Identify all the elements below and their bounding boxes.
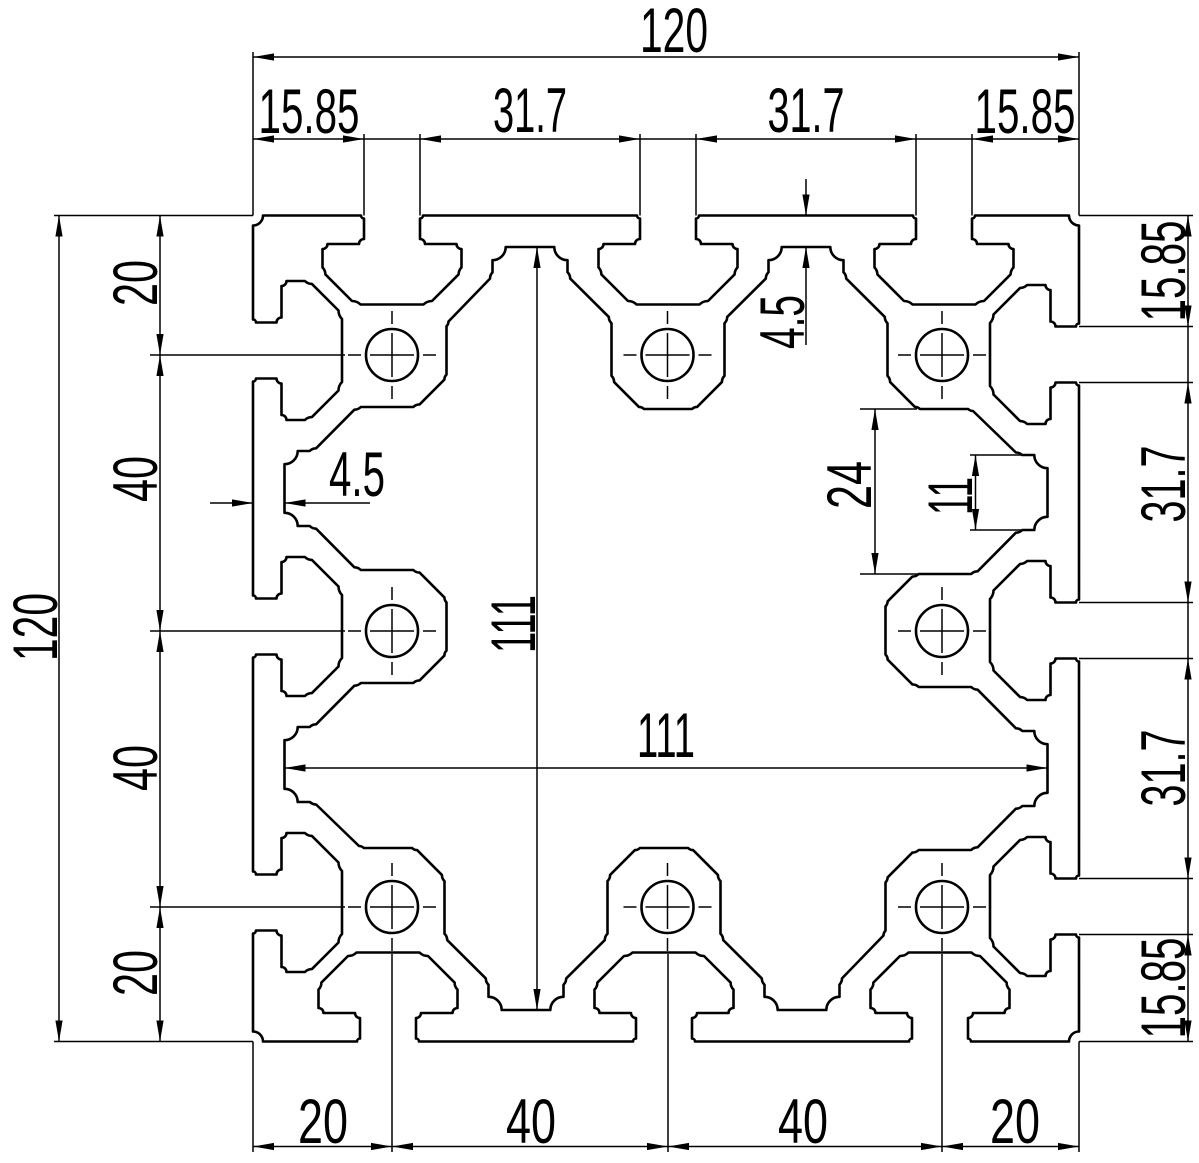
svg-text:31.7: 31.7 xyxy=(493,76,567,146)
svg-text:40: 40 xyxy=(778,1087,828,1157)
svg-text:4.5: 4.5 xyxy=(329,440,385,510)
svg-text:31.7: 31.7 xyxy=(1129,446,1199,523)
svg-text:31.7: 31.7 xyxy=(768,76,845,146)
svg-text:40: 40 xyxy=(101,456,171,502)
svg-text:120: 120 xyxy=(640,0,708,66)
svg-text:20: 20 xyxy=(298,1087,348,1157)
svg-text:24: 24 xyxy=(815,461,885,509)
svg-text:20: 20 xyxy=(101,260,171,306)
svg-text:15.85: 15.85 xyxy=(259,77,360,147)
svg-text:111: 111 xyxy=(479,595,549,653)
svg-text:11: 11 xyxy=(916,477,986,515)
svg-text:20: 20 xyxy=(990,1087,1040,1157)
svg-text:120: 120 xyxy=(1,593,71,661)
svg-text:20: 20 xyxy=(101,950,171,996)
svg-text:4.5: 4.5 xyxy=(748,295,818,349)
svg-text:40: 40 xyxy=(506,1087,556,1157)
svg-text:40: 40 xyxy=(101,745,171,791)
svg-text:15.85: 15.85 xyxy=(975,77,1076,147)
svg-text:15.85: 15.85 xyxy=(1129,221,1199,322)
svg-text:111: 111 xyxy=(637,701,695,771)
svg-text:15.85: 15.85 xyxy=(1129,938,1199,1039)
svg-text:31.7: 31.7 xyxy=(1129,730,1199,807)
